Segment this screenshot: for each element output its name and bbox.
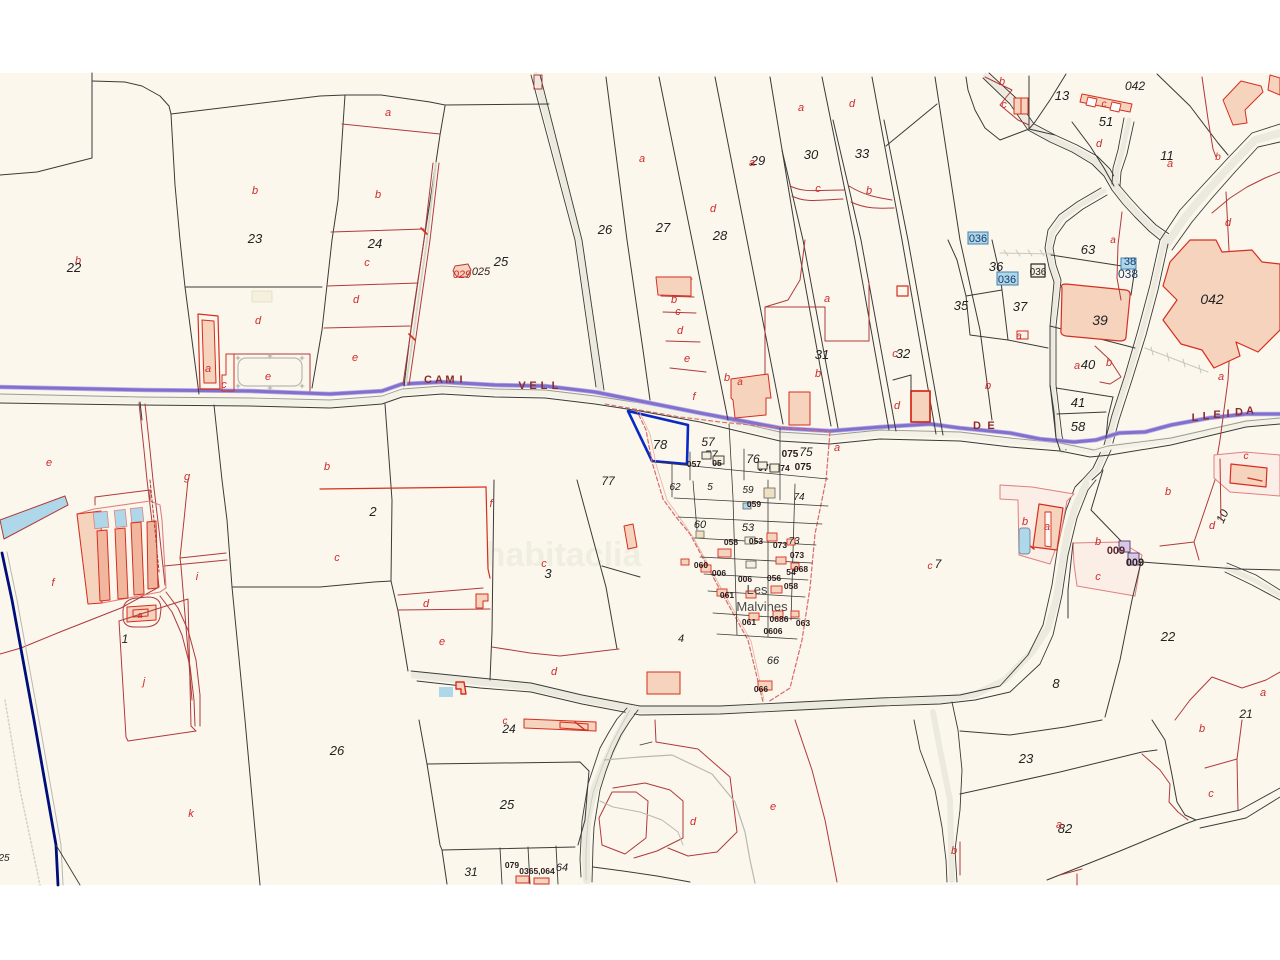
svg-text:33: 33	[855, 146, 870, 161]
svg-text:L: L	[541, 380, 548, 392]
svg-text:c: c	[364, 257, 370, 269]
svg-text:25: 25	[493, 254, 509, 269]
svg-text:059: 059	[747, 499, 761, 509]
svg-text:d: d	[353, 294, 360, 306]
svg-text:056: 056	[767, 573, 781, 583]
svg-text:e: e	[684, 353, 690, 365]
svg-text:a: a	[1218, 371, 1224, 383]
svg-text:a: a	[639, 153, 645, 165]
svg-text:40: 40	[1081, 357, 1096, 372]
svg-text:V: V	[518, 380, 526, 392]
svg-text:c: c	[221, 379, 227, 391]
svg-text:d: d	[1225, 217, 1232, 229]
svg-text:a: a	[1110, 235, 1116, 246]
svg-text:a: a	[798, 102, 804, 114]
svg-text:058: 058	[724, 537, 738, 547]
svg-text:c: c	[1244, 451, 1249, 462]
svg-text:b: b	[1106, 357, 1112, 369]
svg-text:59: 59	[742, 485, 754, 496]
svg-text:a: a	[1074, 360, 1080, 372]
svg-text:b: b	[999, 76, 1005, 88]
svg-text:05: 05	[712, 458, 722, 468]
svg-text:a: a	[1167, 158, 1173, 170]
svg-text:21: 21	[1238, 707, 1252, 721]
svg-text:e: e	[352, 352, 358, 364]
svg-text:073: 073	[790, 550, 804, 560]
svg-text:061: 061	[720, 590, 734, 600]
svg-text:8: 8	[1052, 676, 1060, 691]
svg-text:038: 038	[1118, 267, 1138, 281]
svg-text:74: 74	[780, 463, 790, 473]
svg-text:b: b	[815, 368, 821, 380]
svg-text:b: b	[985, 380, 991, 392]
svg-text:64: 64	[556, 862, 568, 874]
svg-text:063: 063	[796, 618, 810, 628]
svg-text:5: 5	[707, 482, 713, 493]
svg-text:26: 26	[329, 743, 345, 758]
svg-text:053: 053	[749, 536, 763, 546]
svg-text:k: k	[188, 808, 194, 820]
svg-text:061: 061	[742, 617, 756, 627]
svg-text:A: A	[435, 374, 443, 386]
svg-text:d: d	[710, 203, 717, 215]
svg-text:036: 036	[969, 233, 987, 245]
svg-text:M: M	[445, 374, 454, 386]
svg-text:31: 31	[815, 347, 829, 362]
svg-text:e: e	[265, 371, 271, 383]
svg-text:079: 079	[505, 860, 519, 870]
svg-text:62: 62	[669, 482, 681, 493]
svg-text:e: e	[770, 801, 776, 813]
svg-text:c: c	[675, 306, 681, 318]
svg-text:4: 4	[678, 633, 684, 645]
svg-text:036: 036	[998, 274, 1016, 286]
svg-text:23: 23	[1018, 751, 1034, 766]
svg-text:I: I	[459, 374, 462, 386]
svg-text:a: a	[749, 157, 755, 169]
svg-text:27: 27	[655, 220, 671, 235]
svg-text:1: 1	[122, 632, 129, 646]
svg-text:b: b	[724, 372, 730, 384]
svg-text:b: b	[671, 294, 677, 306]
svg-text:e: e	[439, 636, 445, 648]
svg-text:51: 51	[1099, 114, 1113, 129]
svg-text:073: 073	[773, 540, 787, 550]
svg-text:c: c	[503, 716, 508, 727]
svg-text:57: 57	[701, 435, 716, 449]
svg-text:b: b	[866, 185, 872, 197]
svg-text:b: b	[1215, 152, 1221, 163]
svg-text:habitaclia: habitaclia	[485, 536, 643, 574]
svg-text:075: 075	[795, 462, 812, 473]
svg-text:029: 029	[453, 269, 471, 281]
svg-text:b: b	[951, 845, 957, 857]
svg-text:73: 73	[788, 536, 800, 547]
svg-text:c: c	[1095, 571, 1101, 583]
svg-text:d: d	[1209, 520, 1216, 532]
svg-text:31: 31	[464, 865, 477, 879]
svg-text:006: 006	[712, 568, 726, 578]
svg-text:b: b	[1199, 723, 1205, 735]
svg-text:74: 74	[793, 492, 805, 503]
svg-text:25: 25	[0, 853, 10, 864]
svg-text:d: d	[677, 325, 684, 337]
svg-text:36: 36	[989, 259, 1004, 274]
svg-text:D: D	[973, 420, 981, 432]
svg-text:23: 23	[247, 231, 263, 246]
svg-text:a: a	[1056, 819, 1062, 831]
svg-text:d: d	[690, 816, 697, 828]
svg-text:28: 28	[712, 228, 728, 243]
svg-text:22: 22	[1160, 629, 1176, 644]
svg-text:066: 066	[754, 684, 768, 694]
svg-text:41: 41	[1071, 395, 1085, 410]
svg-text:0606: 0606	[764, 626, 783, 636]
svg-text:068: 068	[794, 564, 808, 574]
svg-text:075: 075	[782, 449, 799, 460]
svg-text:a: a	[1016, 331, 1022, 342]
svg-text:39: 39	[1092, 312, 1108, 328]
svg-text:036: 036	[1030, 267, 1047, 278]
svg-text:c: c	[1208, 788, 1214, 800]
svg-text:Les: Les	[747, 582, 768, 597]
svg-text:a: a	[1044, 521, 1050, 533]
svg-text:22: 22	[66, 260, 82, 275]
svg-text:a: a	[834, 442, 840, 454]
svg-text:057: 057	[687, 459, 701, 469]
svg-text:058: 058	[784, 581, 798, 591]
svg-text:E: E	[1213, 409, 1220, 421]
svg-text:c: c	[541, 558, 547, 570]
svg-text:A: A	[1246, 405, 1254, 417]
svg-text:c: c	[928, 561, 933, 572]
svg-text:d: d	[1096, 138, 1103, 150]
svg-text:13: 13	[1055, 88, 1070, 103]
svg-text:L: L	[552, 380, 559, 392]
svg-text:24: 24	[367, 236, 382, 251]
svg-text:L: L	[1203, 411, 1210, 423]
svg-text:0686: 0686	[770, 614, 789, 624]
svg-text:e: e	[46, 457, 52, 469]
svg-text:009: 009	[1126, 557, 1144, 569]
svg-text:c: c	[334, 552, 340, 564]
svg-text:b: b	[375, 189, 381, 201]
svg-text:042: 042	[1200, 291, 1224, 307]
svg-text:c: c	[1001, 99, 1007, 111]
svg-text:a: a	[205, 363, 211, 375]
svg-text:30: 30	[804, 147, 819, 162]
svg-text:35: 35	[954, 298, 969, 313]
svg-text:a: a	[737, 377, 743, 388]
svg-text:26: 26	[597, 222, 613, 237]
svg-text:58: 58	[1071, 419, 1086, 434]
svg-text:a: a	[1260, 687, 1266, 699]
svg-text:25: 25	[499, 797, 515, 812]
svg-text:b: b	[252, 185, 258, 197]
svg-text:78: 78	[653, 437, 668, 452]
svg-text:d: d	[551, 666, 558, 678]
svg-text:D: D	[1235, 406, 1243, 418]
svg-text:b: b	[1095, 536, 1101, 548]
svg-text:L: L	[1192, 412, 1199, 424]
svg-text:b: b	[1165, 486, 1171, 498]
svg-text:a: a	[385, 107, 391, 119]
svg-text:d: d	[423, 598, 430, 610]
svg-text:d: d	[255, 315, 262, 327]
svg-text:c: c	[815, 183, 821, 195]
svg-text:d: d	[894, 400, 901, 412]
svg-text:75: 75	[799, 445, 813, 459]
svg-text:C: C	[424, 374, 432, 386]
svg-text:32: 32	[896, 346, 911, 361]
svg-text:025: 025	[472, 266, 491, 278]
svg-text:63: 63	[1081, 242, 1096, 257]
svg-text:2: 2	[368, 504, 377, 519]
svg-text:c: c	[892, 348, 898, 360]
svg-text:b: b	[1022, 516, 1028, 528]
svg-text:Malvines: Malvines	[736, 599, 788, 614]
svg-text:a: a	[824, 293, 830, 305]
svg-text:E: E	[529, 380, 536, 392]
svg-text:E: E	[987, 420, 994, 432]
svg-text:c: c	[1102, 99, 1107, 110]
svg-text:77: 77	[601, 474, 616, 488]
svg-text:60: 60	[694, 519, 707, 531]
svg-text:b: b	[324, 461, 330, 473]
svg-text:d: d	[849, 98, 856, 110]
svg-text:060: 060	[694, 560, 708, 570]
svg-text:009: 009	[1107, 545, 1125, 557]
svg-text:53: 53	[742, 522, 755, 534]
svg-text:I: I	[1226, 408, 1229, 420]
svg-text:66: 66	[767, 655, 780, 667]
svg-text:042: 042	[1125, 79, 1145, 93]
svg-text:37: 37	[1013, 299, 1028, 314]
